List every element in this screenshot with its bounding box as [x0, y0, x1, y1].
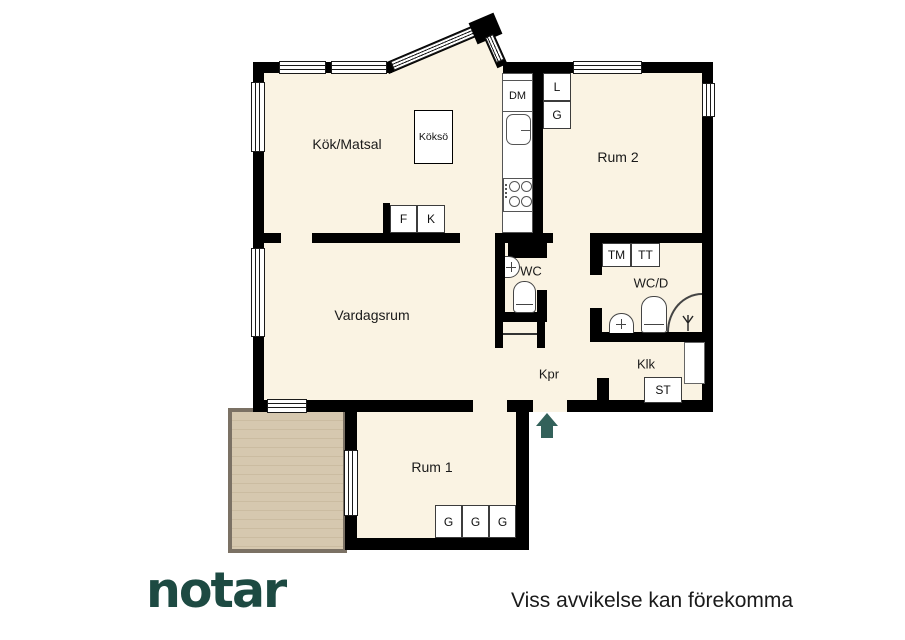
wall-room1-top — [345, 400, 473, 412]
wall-wcd-left-upper — [590, 235, 602, 275]
notar-logo: notar — [146, 566, 285, 615]
freezer-box: K — [417, 205, 445, 233]
window-room2-right — [702, 83, 715, 117]
wc-toilet — [513, 281, 536, 313]
room-label-wcd: WC/D — [634, 276, 669, 291]
wall-wcd-top — [590, 233, 713, 243]
balcony-door — [267, 399, 307, 413]
wcd-toilet — [641, 296, 667, 333]
wall-room2-door-jamb — [543, 233, 553, 243]
dishwasher-box: DM — [502, 80, 533, 112]
balcony-deck — [228, 408, 347, 553]
wall-niche-left — [495, 322, 503, 348]
wardrobe-box-room1-2: G — [462, 505, 489, 538]
floor-main — [264, 25, 702, 400]
tumble-dryer-box: TT — [631, 243, 660, 267]
kitchen-sink — [506, 114, 531, 145]
linen-cabinet-box: L — [543, 73, 571, 101]
wall-wc-shaft-block — [508, 243, 547, 258]
wall-wc-left — [495, 233, 505, 322]
kitchen-island-box: Köksö — [414, 110, 453, 164]
window-living-left — [251, 248, 265, 337]
disclaimer-text: Viss avvikelse kan förekomma — [511, 589, 793, 613]
floor-room1-door-opening — [473, 400, 507, 412]
window-top-1 — [279, 61, 326, 74]
stove-knobs — [505, 184, 507, 186]
wall-wcd-bottom — [590, 332, 702, 342]
wall-fk-stub — [383, 203, 390, 233]
wall-room1-right — [516, 400, 529, 550]
stove-burner-4 — [521, 196, 532, 207]
wardrobe-box-room1-1: G — [435, 505, 462, 538]
window-top-2 — [331, 61, 387, 74]
sink-drain-line — [521, 130, 530, 131]
niche-shelf-line — [503, 333, 537, 335]
stove-burner-1 — [509, 181, 520, 192]
wall-niche-right — [537, 322, 545, 348]
window-room1-balcony — [344, 450, 358, 516]
wall-wc-bottom — [495, 312, 545, 322]
wall-klk-left — [597, 378, 609, 412]
stove-burner-3 — [509, 196, 520, 207]
wall-living-bottom-a — [253, 400, 267, 412]
room-label-room2: Rum 2 — [597, 149, 638, 165]
floor-entrance-opening — [533, 400, 567, 412]
wall-mid-main — [312, 233, 460, 243]
room-label-closet: Klk — [637, 357, 655, 372]
floorplan-canvas: DM L G Köksö F K TM TT ST G G G Kök/Mats… — [0, 0, 905, 640]
shower-icon — [680, 314, 696, 332]
wall-kitchen-divider — [533, 73, 543, 243]
room-label-hall: Kpr — [539, 367, 559, 382]
wardrobe-box-room1-3: G — [489, 505, 516, 538]
wall-mid-left-stub — [253, 233, 281, 243]
st-cabinet-box: ST — [644, 377, 682, 403]
wardrobe-box-room2: G — [543, 101, 571, 129]
room-label-living: Vardagsrum — [334, 307, 409, 323]
window-room2-top — [573, 61, 642, 74]
wall-bottom-right — [567, 400, 713, 412]
room-label-wc: WC — [520, 264, 542, 279]
entrance-arrow-stem — [541, 425, 553, 438]
washing-machine-box: TM — [602, 243, 631, 267]
window-kitchen-left — [251, 82, 265, 152]
klk-door-leaf — [684, 342, 705, 384]
wall-room1-bottom — [345, 538, 529, 550]
room-label-kitchen: Kök/Matsal — [312, 136, 381, 152]
fridge-box: F — [390, 205, 417, 233]
stove-burner-2 — [521, 181, 532, 192]
wall-living-bottom-b — [307, 400, 349, 412]
room-label-room1: Rum 1 — [411, 459, 452, 475]
